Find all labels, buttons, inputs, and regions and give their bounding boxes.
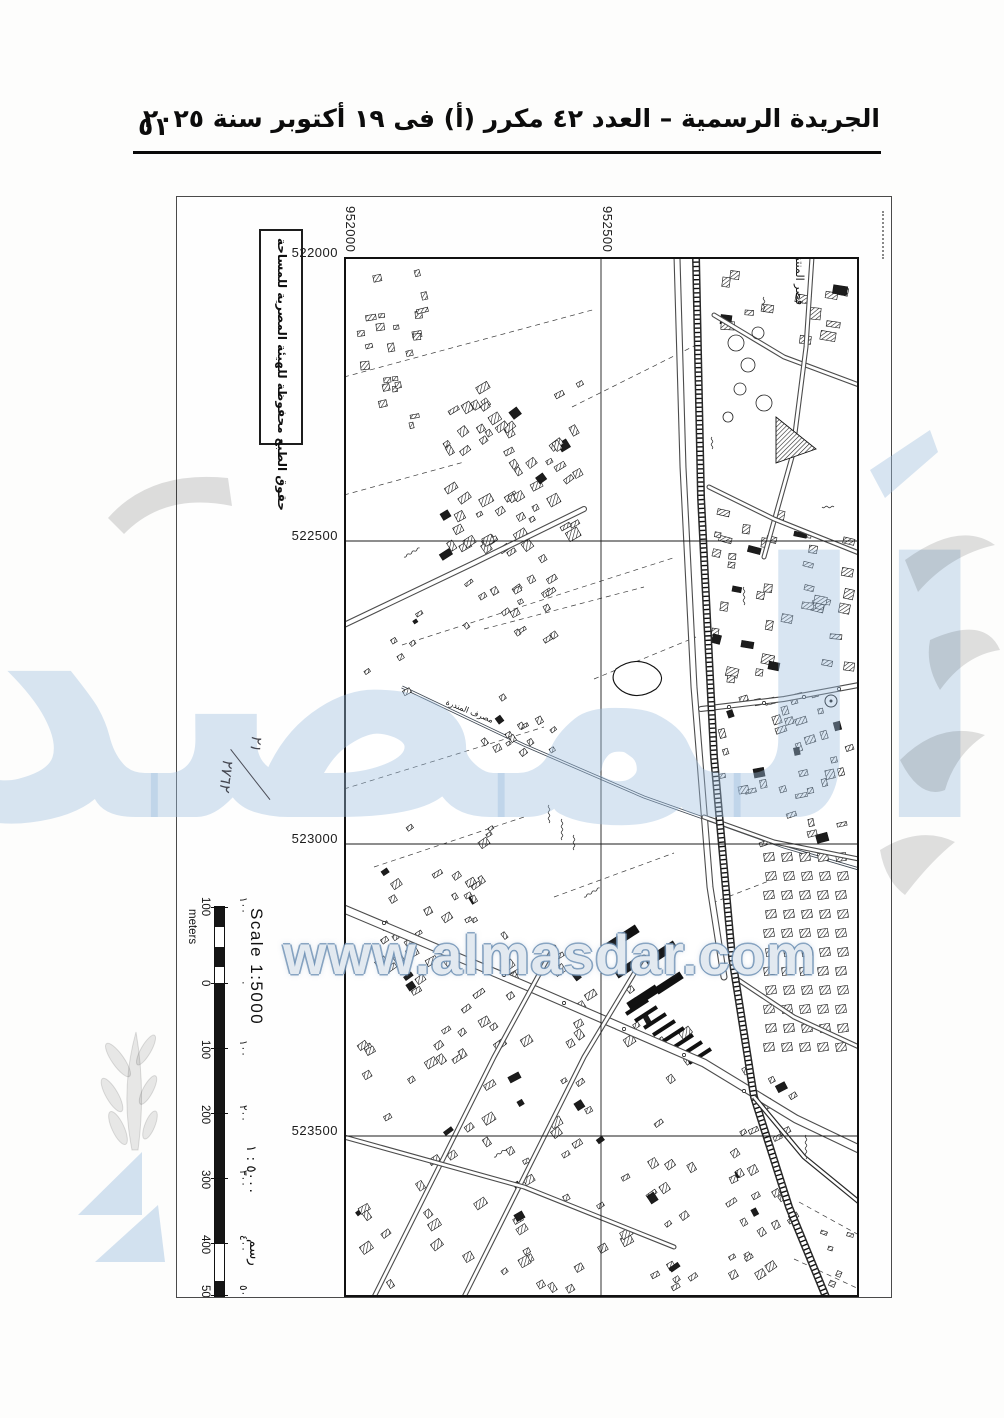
copyright-box: حقوق الطبع محفوظة للهيئة المصرية للمساحة [259, 229, 303, 445]
adjacent-sheet-ticks [882, 211, 884, 259]
northing-label-522500: 522500 [292, 528, 338, 543]
scale-tick-ar-0: ٠ [237, 980, 249, 986]
scale-tick-200: 200 [199, 1105, 211, 1124]
blue-letter-fragments [78, 1152, 165, 1262]
scale-tick-300: 300 [199, 1170, 211, 1189]
map-sheet: حقوق الطبع محفوظة للهيئة المصرية للمساحة… [176, 196, 892, 1298]
scale-tick-400: 400 [199, 1235, 211, 1254]
palace-label: قصر المنتزة [793, 257, 806, 305]
scale-tick-ar-200: ٢٠٠ [237, 1105, 249, 1122]
scale-tick-0: 0 [199, 980, 211, 986]
handwritten-denominator: ٢٧٦٢ [216, 758, 237, 792]
scale-tick-ar-300: ٣٠٠ [237, 1170, 249, 1187]
scale-tick-500: 500 [199, 1285, 211, 1298]
header-divider [133, 151, 881, 154]
northing-label-523500: 523500 [292, 1123, 338, 1138]
easting-label-952500: 952500 [601, 206, 614, 252]
scale-title-en: Scale 1:5000 [248, 908, 265, 1025]
easting-label-952000: 952000 [344, 206, 357, 252]
scale-tick-ar-500: ٥٠٠ [237, 1285, 249, 1298]
scale-tick-ar-400: ٤٠٠ [237, 1235, 249, 1252]
scale-tick-100l: 100 [199, 897, 211, 916]
copyright-text: حقوق الطبع محفوظة للهيئة المصرية للمساحة [275, 238, 289, 511]
gazette-header-title: الجريدة الرسمية – العدد ٤٢ مكرر (أ) فى ١… [143, 104, 880, 133]
scale-tick-ar-100l: ١٠٠ [237, 897, 249, 914]
handwritten-numerator: ٢١ [246, 734, 266, 752]
topographic-map-canvas: قصر المنتزةمصرف المندرة [344, 257, 859, 1297]
scale-unit-en: meters [186, 909, 198, 944]
northing-label-523000: 523000 [292, 831, 338, 846]
scale-tick-100: 100 [199, 1040, 211, 1059]
laurel-branch-watermark [97, 1032, 160, 1150]
scale-tick-ar-100: ١٠٠ [237, 1040, 249, 1057]
scale-bar [214, 906, 225, 1298]
northing-label-522000: 522000 [292, 245, 338, 260]
